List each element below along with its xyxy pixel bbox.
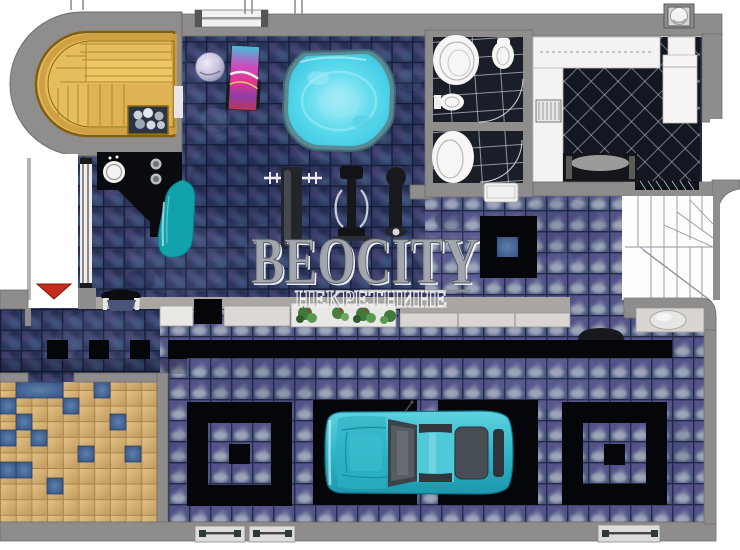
svg-text:НЕКРЕТНИНЕ: НЕКРЕТНИНЕ <box>295 287 447 313</box>
